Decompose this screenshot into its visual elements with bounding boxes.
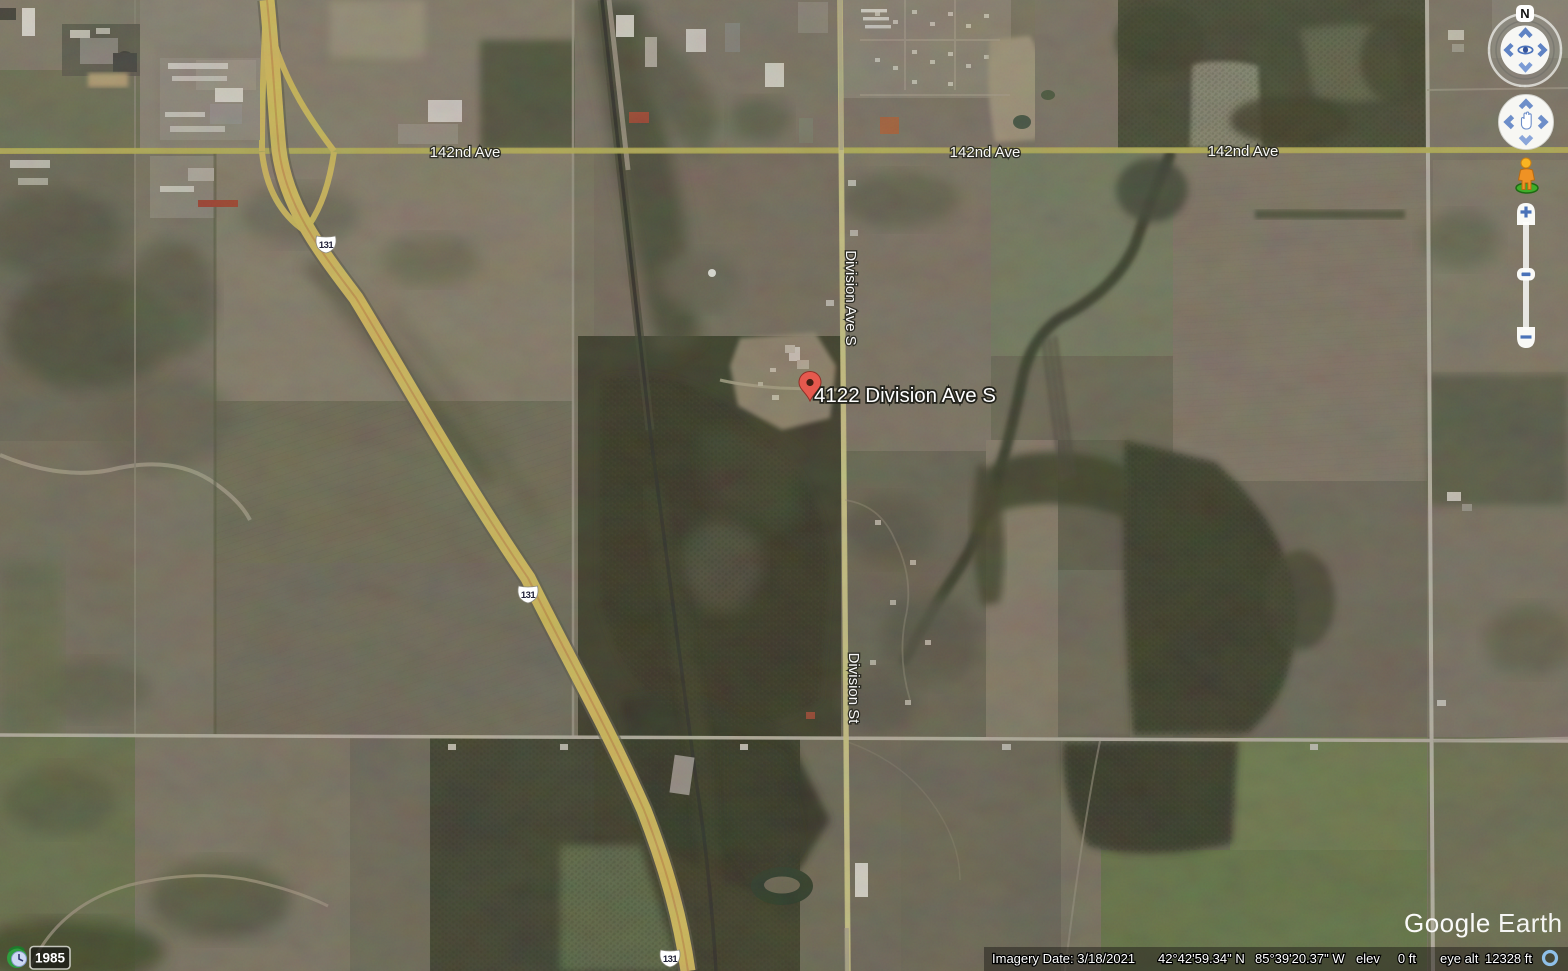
svg-text:12328 ft: 12328 ft: [1485, 951, 1532, 966]
svg-text:Earth: Earth: [1498, 908, 1563, 938]
svg-text:elev: elev: [1356, 951, 1380, 966]
svg-text:131: 131: [521, 590, 537, 601]
svg-text:42°42'59.34" N: 42°42'59.34" N: [1158, 951, 1245, 966]
svg-text:85°39'20.37" W: 85°39'20.37" W: [1255, 951, 1345, 966]
svg-text:N: N: [1520, 6, 1529, 21]
svg-text:142nd Ave: 142nd Ave: [1208, 143, 1279, 160]
svg-text:eye alt: eye alt: [1440, 951, 1479, 966]
svg-text:1985: 1985: [35, 951, 66, 966]
svg-text:Division Ave S: Division Ave S: [842, 250, 859, 346]
svg-text:4122 Division Ave S: 4122 Division Ave S: [814, 384, 996, 407]
svg-text:0 ft: 0 ft: [1398, 951, 1416, 966]
svg-text:Google: Google: [1404, 908, 1491, 938]
svg-text:131: 131: [663, 954, 679, 965]
svg-text:Imagery Date: 3/18/2021: Imagery Date: 3/18/2021: [992, 951, 1135, 966]
svg-text:131: 131: [319, 240, 335, 251]
svg-text:142nd Ave: 142nd Ave: [430, 144, 501, 161]
svg-text:Division St: Division St: [845, 653, 862, 725]
svg-text:142nd Ave: 142nd Ave: [950, 144, 1021, 161]
